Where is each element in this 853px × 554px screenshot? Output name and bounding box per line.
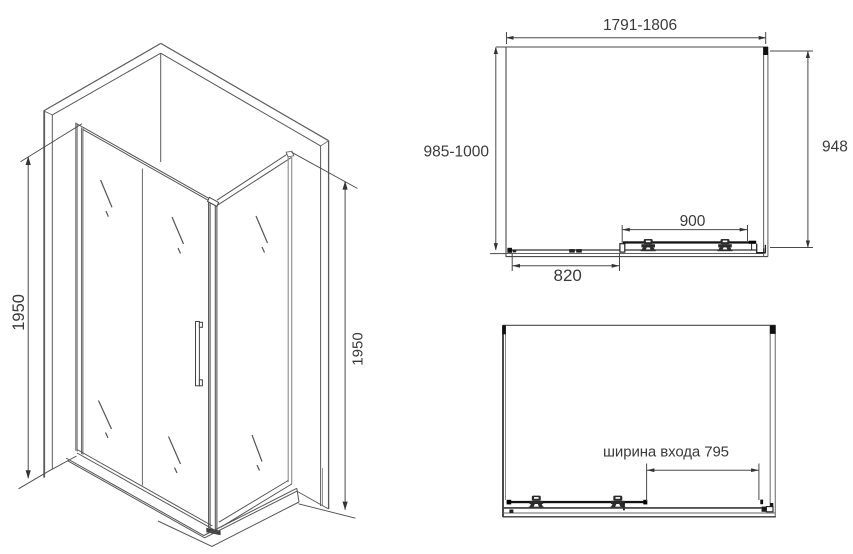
svg-text:900: 900 — [680, 213, 706, 230]
svg-text:820: 820 — [554, 266, 582, 285]
svg-text:985-1000: 985-1000 — [423, 144, 489, 161]
svg-text:1950: 1950 — [10, 294, 28, 331]
svg-text:ширина входа 795: ширина входа 795 — [603, 444, 729, 461]
svg-text:1791-1806: 1791-1806 — [603, 17, 677, 34]
svg-text:948: 948 — [822, 139, 848, 156]
svg-text:1950: 1950 — [350, 332, 367, 365]
